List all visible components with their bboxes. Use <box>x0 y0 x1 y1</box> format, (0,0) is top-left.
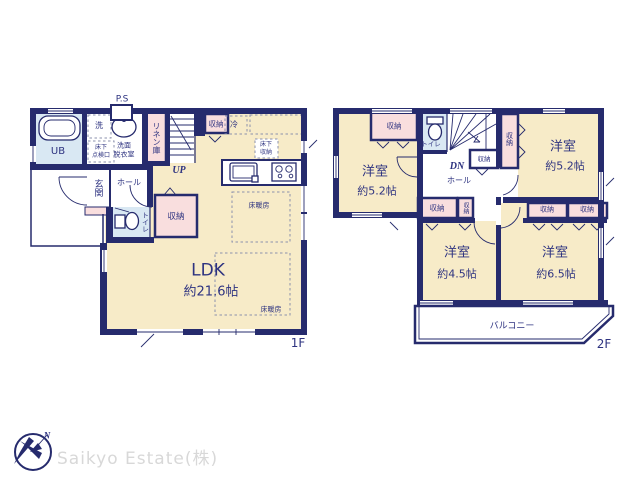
floor1-label: 1F <box>291 337 306 349</box>
floor-heating-label-2: 床暖房 <box>261 307 282 314</box>
toilet-icon-1f <box>115 213 139 230</box>
hall-2f-label: ホール <box>447 177 471 185</box>
ldk-size-label: 約21.6帖 <box>184 286 239 299</box>
floor-heating-label-1: 床暖房 <box>249 203 270 210</box>
room-tr-size-label: 約5.2帖 <box>545 161 585 172</box>
underfloor-access-label-1: 床下 <box>95 145 107 151</box>
ps-label: P.S <box>116 96 129 105</box>
kitchen-counter <box>222 160 303 185</box>
closet-mid-left-label: 収納 <box>430 204 445 212</box>
hall-1f-label: ホール <box>117 179 141 187</box>
room-bl-name-label: 洋室 <box>444 247 470 260</box>
stairs-down-label: DN <box>450 162 464 172</box>
closet-2f-top-left-label: 収納 <box>387 122 402 130</box>
washroom-label-1: 洗面 <box>117 143 131 150</box>
room-bl-size-label: 約4.5帖 <box>437 269 477 280</box>
linen-closet-label: リネン庫 <box>152 122 160 154</box>
toilet-icon-2f <box>427 117 443 140</box>
washroom-label-2: 脱衣室 <box>114 152 135 159</box>
faucet-icon <box>252 176 258 182</box>
entrance-step <box>85 207 109 215</box>
laundry-label: 洗 <box>95 122 103 130</box>
room-tl-name-label: 洋室 <box>362 166 388 179</box>
floorplan-drawing <box>0 0 640 480</box>
hall-closet-label: 収納 <box>167 213 184 222</box>
room-2f-top-right <box>518 114 598 197</box>
room-2f-bottom-left <box>423 221 496 300</box>
balcony-label: バルコニー <box>490 323 535 332</box>
closet-mid-right-2-label: 収納 <box>580 207 594 214</box>
hall-2f-east <box>501 171 518 197</box>
unit-bath-label: UB <box>51 147 65 157</box>
entrance-label: 玄関 <box>93 179 102 197</box>
bathtub-icon <box>39 116 80 140</box>
stove-icon <box>272 163 296 181</box>
room-br-name-label: 洋室 <box>542 247 568 260</box>
room-tl-size-label: 約5.2帖 <box>357 186 397 197</box>
pipe-space <box>111 105 132 120</box>
hall-1f <box>111 170 147 207</box>
toilet-1f-label: トイレ <box>142 212 149 233</box>
fridge-label: 冷 <box>230 121 238 129</box>
room-tr-name-label: 洋室 <box>550 141 576 154</box>
underfloor-access-label-2: 点検口 <box>92 153 110 159</box>
compass-north-label: N <box>44 432 51 441</box>
closet-stairs-side-label: 収納 <box>506 132 513 146</box>
room-br-size-label: 約6.5帖 <box>536 269 576 280</box>
toilet-2f-label: トイレ <box>421 141 441 148</box>
closet-under-stairs-label: 収納 <box>478 156 491 163</box>
closet-mid-right-1-label: 収納 <box>540 207 554 214</box>
closet-mid-small-label: 収納 <box>462 202 468 214</box>
stairs-up-label: UP <box>172 166 185 176</box>
floorplan-image: P.S 洗 床下 点検口 洗面 脱衣室 UB リネン庫 UP 収納 冷 床下 収… <box>0 0 640 480</box>
closet-top-label: 収納 <box>209 120 224 128</box>
underfloor-storage-label-2: 収納 <box>260 150 272 156</box>
underfloor-storage-label-1: 床下 <box>260 142 272 148</box>
company-watermark: Saikyo Estate(株) <box>57 451 218 468</box>
floor2-label: 2F <box>597 338 612 350</box>
ldk-label: LDK <box>191 263 225 280</box>
